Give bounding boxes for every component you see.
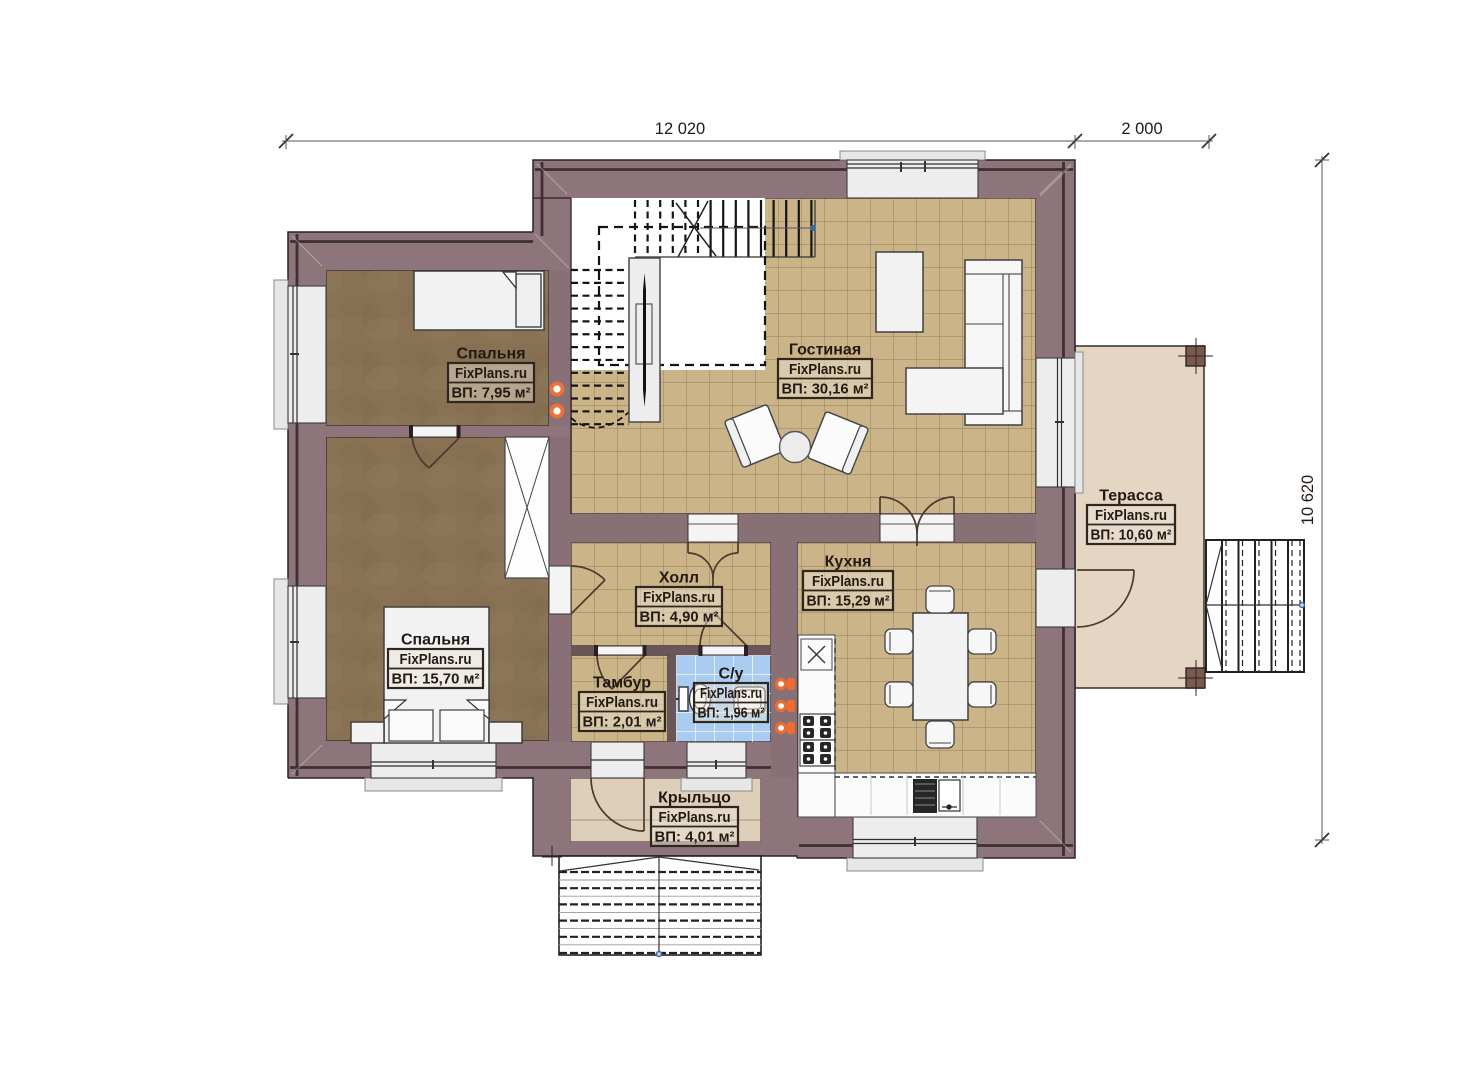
svg-text:2 000: 2 000 — [1121, 120, 1162, 138]
svg-text:FixPlans.ru: FixPlans.ru — [586, 695, 658, 711]
svg-text:С/у: С/у — [719, 666, 744, 683]
svg-text:FixPlans.ru: FixPlans.ru — [789, 362, 861, 378]
svg-text:FixPlans.ru: FixPlans.ru — [1095, 508, 1167, 524]
svg-text:FixPlans.ru: FixPlans.ru — [400, 652, 472, 668]
svg-text:Спальня: Спальня — [456, 346, 525, 363]
svg-text:ВП: 1,96 м²: ВП: 1,96 м² — [698, 706, 765, 722]
svg-text:ВП: 15,29 м²: ВП: 15,29 м² — [807, 594, 890, 610]
svg-text:FixPlans.ru: FixPlans.ru — [455, 366, 527, 382]
svg-text:ВП: 10,60 м²: ВП: 10,60 м² — [1091, 528, 1172, 544]
svg-text:Спальня: Спальня — [401, 632, 470, 649]
svg-text:ВП: 7,95 м²: ВП: 7,95 м² — [452, 386, 531, 402]
svg-text:Кухня: Кухня — [825, 554, 872, 571]
svg-text:FixPlans.ru: FixPlans.ru — [812, 574, 884, 590]
svg-text:FixPlans.ru: FixPlans.ru — [700, 686, 762, 702]
svg-text:Тамбур: Тамбур — [593, 675, 651, 692]
svg-text:ВП: 15,70 м²: ВП: 15,70 м² — [392, 672, 480, 688]
svg-text:ВП: 2,01 м²: ВП: 2,01 м² — [583, 715, 662, 731]
svg-text:ВП: 30,16 м²: ВП: 30,16 м² — [782, 382, 869, 398]
svg-text:ВП: 4,01 м²: ВП: 4,01 м² — [655, 830, 735, 846]
svg-text:FixPlans.ru: FixPlans.ru — [643, 590, 715, 606]
svg-text:ВП: 4,90 м²: ВП: 4,90 м² — [640, 610, 719, 626]
svg-text:Холл: Холл — [659, 570, 699, 587]
svg-text:10 620: 10 620 — [1299, 475, 1317, 525]
svg-text:Терасса: Терасса — [1099, 488, 1163, 505]
svg-text:Крыльцо: Крыльцо — [658, 790, 731, 807]
svg-text:12 020: 12 020 — [655, 120, 705, 138]
svg-text:FixPlans.ru: FixPlans.ru — [659, 810, 731, 826]
svg-text:Гостиная: Гостиная — [789, 342, 861, 359]
